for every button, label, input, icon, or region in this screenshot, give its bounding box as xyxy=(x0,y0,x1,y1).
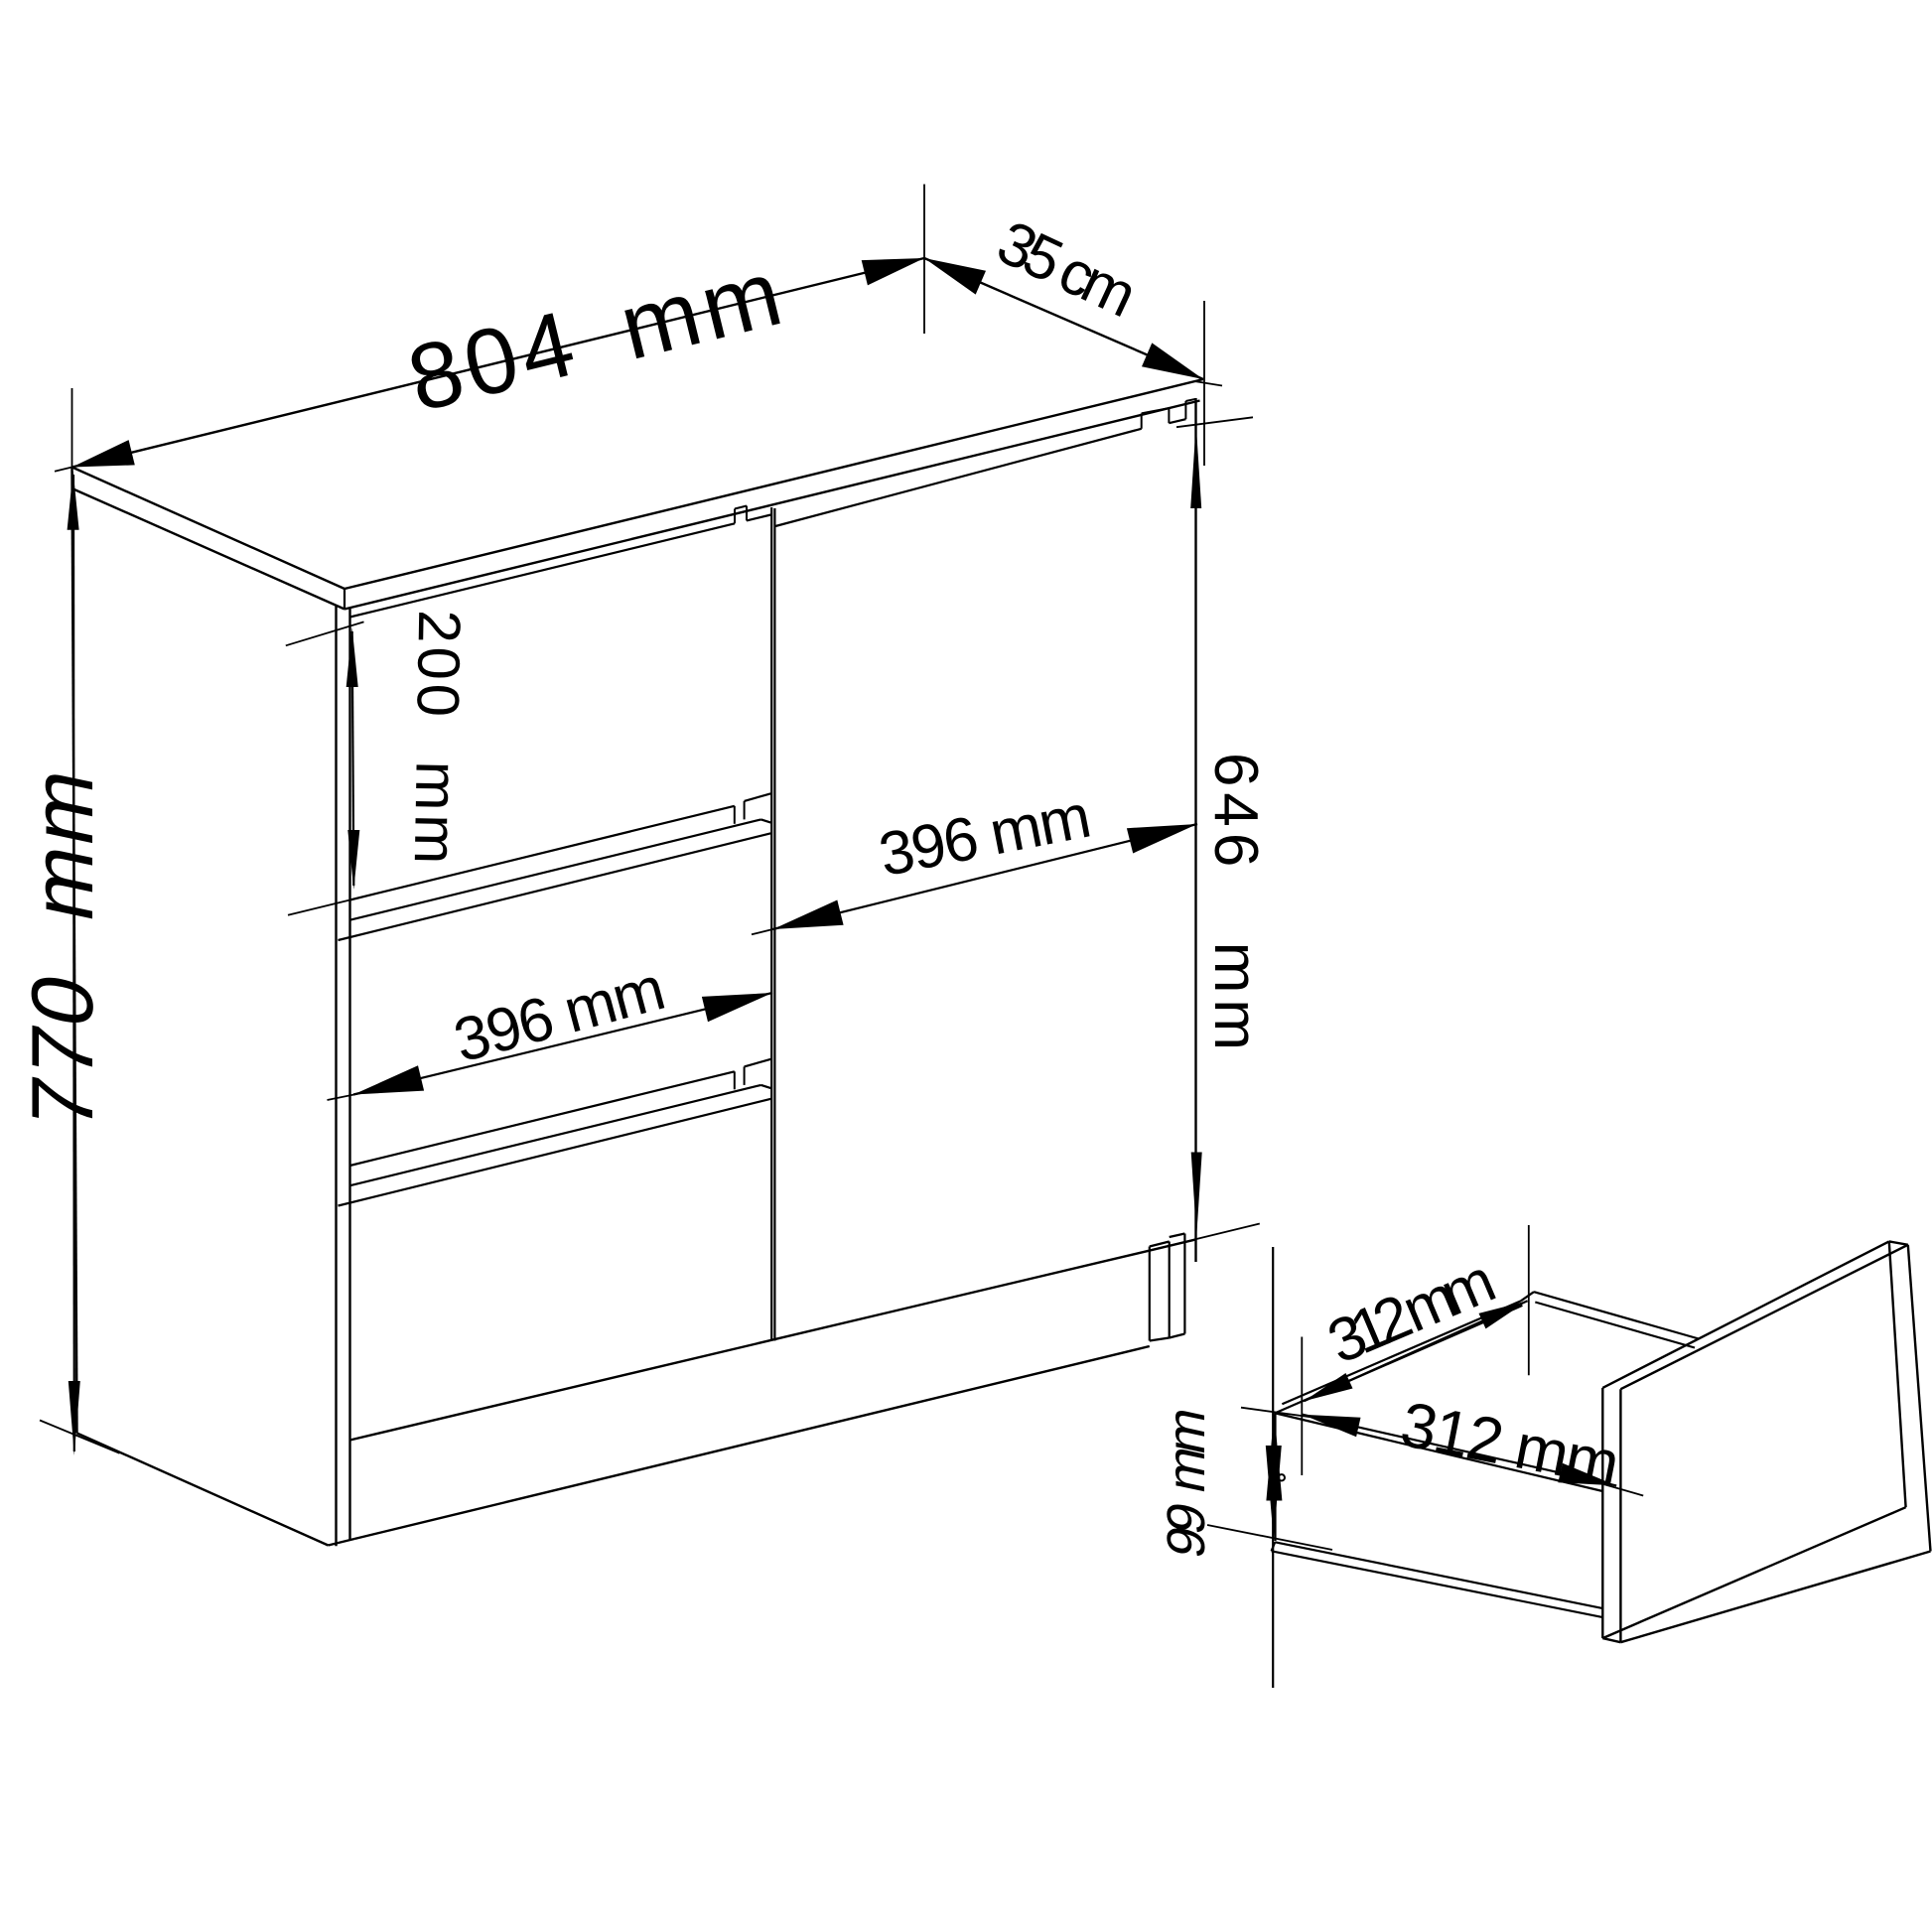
svg-text:99 mm: 99 mm xyxy=(1157,1402,1216,1564)
svg-text:770 mm: 770 mm xyxy=(13,759,111,1138)
svg-text:646 mm: 646 mm xyxy=(1201,753,1270,1050)
